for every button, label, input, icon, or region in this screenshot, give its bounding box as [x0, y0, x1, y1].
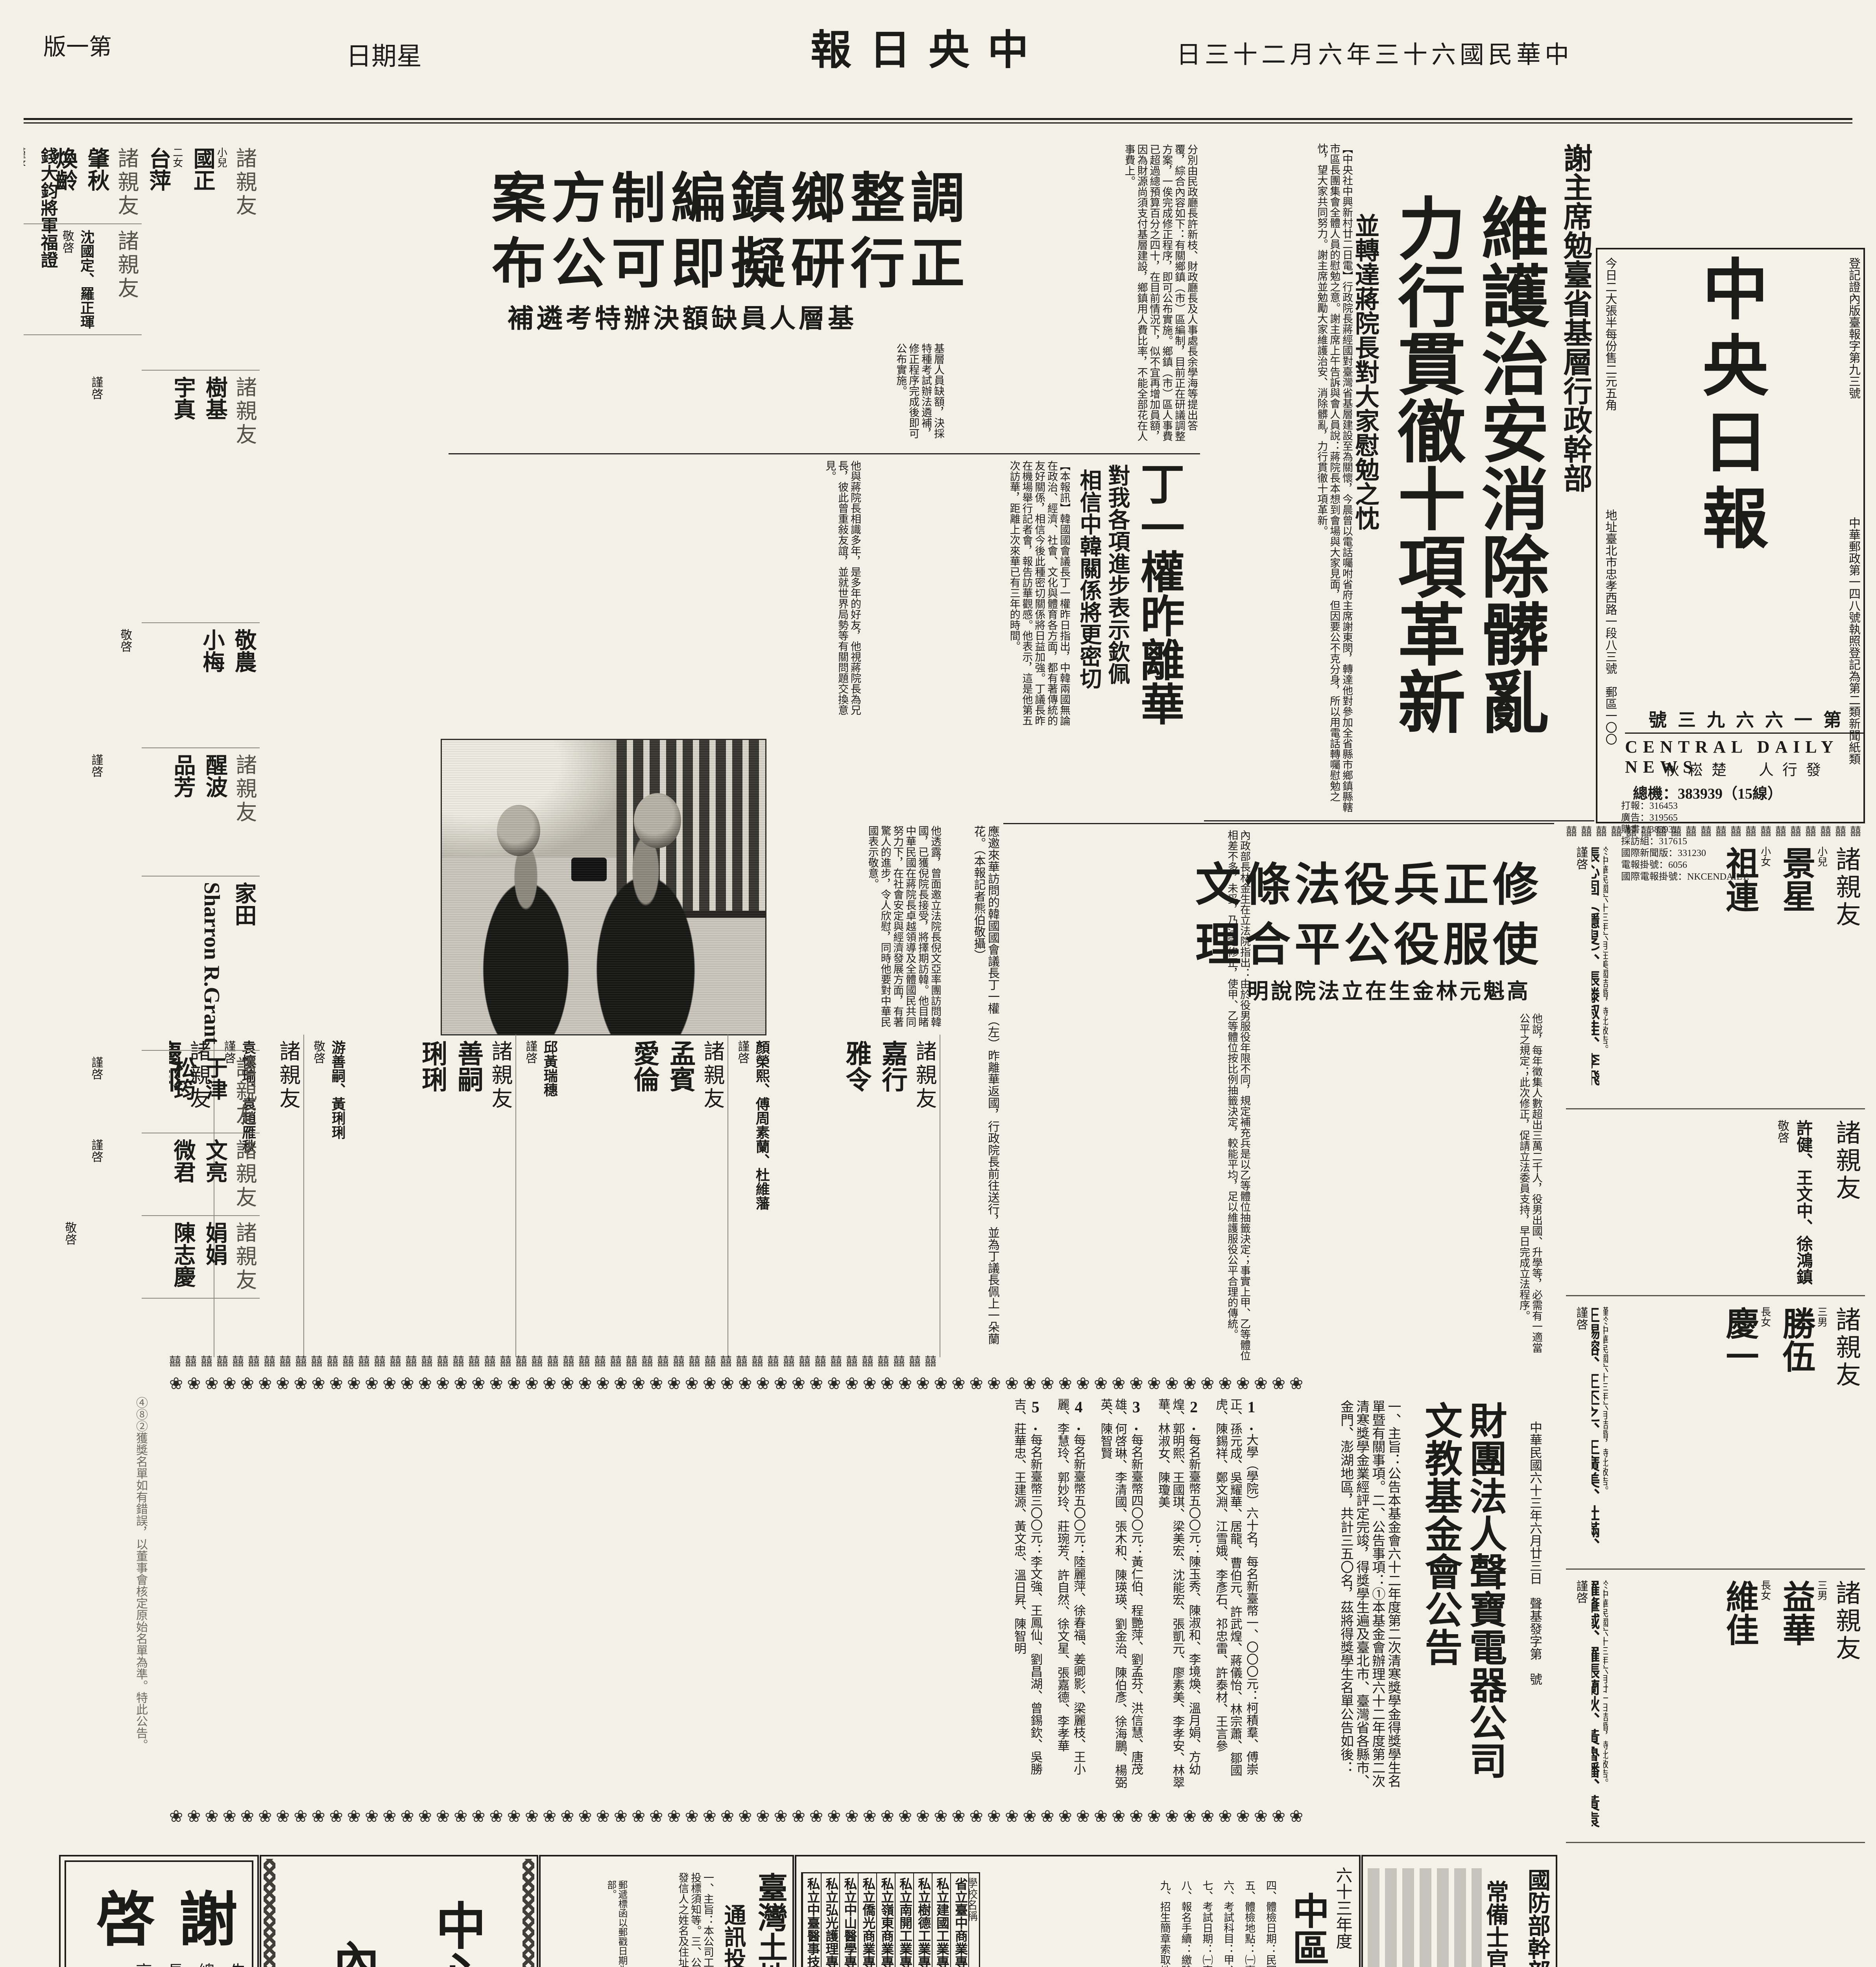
- ad-closer: 謹啓: [1574, 1580, 1588, 1603]
- classified-ad: 諸親友 許健、王文中、徐鴻鎮 敬啓: [1566, 1109, 1865, 1296]
- ad-header: 諸親友: [231, 376, 257, 447]
- ad-header: 諸親友: [231, 1139, 257, 1210]
- ad-couple-names: 于津 松筠: [111, 1056, 228, 1100]
- ad-couple-names: 樹基 宇真: [111, 376, 228, 420]
- schools-item: 七、考試日期：㈠專科學生班 ㈡常備士官班。: [1200, 1880, 1213, 1967]
- ad-closer: 謹啓: [89, 754, 103, 777]
- winner-group-number: 3.: [1127, 1398, 1145, 1434]
- winner-group: 1.大學（學院）六十名，每名新臺幣一、〇〇〇元：柯積羣、傅崇正、孫元成、吳耀華、…: [1213, 1398, 1261, 1795]
- masthead-publisher: 發行人 楚崧秋: [1664, 758, 1830, 779]
- school-name: 私立樹德工業專科學校: [913, 1873, 932, 1967]
- ad-couple-names: 娟娟 陳志慶: [84, 1222, 227, 1288]
- ad-name-1: 善嗣: [452, 1040, 483, 1092]
- shenbao-items: 一、主旨：公告本基金會六十二年度第二次清寒獎學金得獎學生名單暨有關事項。二、公告…: [1271, 1400, 1401, 1793]
- shenbao-title: 財團法人聲寶電器公司文教基金會公告: [1413, 1401, 1507, 1791]
- school-name: 私立弘光護理專科學校: [821, 1873, 839, 1967]
- ad-name-2: 微君: [169, 1139, 196, 1183]
- masthead-registration-1: 登記證內版臺報字第九三號: [1846, 257, 1860, 509]
- ad-relation-2: 小女: [1759, 846, 1771, 912]
- ad-header: 諸親友: [1831, 846, 1861, 929]
- ad-header: 諸親友: [1831, 1580, 1861, 1663]
- lead-headline-1: 維護治安消除髒亂: [1468, 194, 1548, 815]
- schools-table-header: 學校名稱: [968, 1873, 979, 1967]
- ad-name-2: 煥齡: [51, 147, 78, 191]
- ad-header: 諸親友: [231, 1056, 257, 1127]
- lead-body: 【中央社中興新村廿二日電】行政院長蔣經國對臺灣省基層建設至為關懷，今晨曾以電話囑…: [1207, 143, 1353, 815]
- ad-relation-2: 二女: [171, 147, 183, 191]
- ad-header: 諸親友: [113, 147, 138, 218]
- ad-relation-1: 三男: [1815, 1306, 1828, 1373]
- tender-title: 臺灣土地開發信託投資公司: [752, 1872, 787, 1967]
- thanks-line: 先嚴王公舍抄之喪辱蒙: [226, 1963, 246, 1967]
- ad-name-2: 品芳: [169, 754, 196, 798]
- masthead-phone-line: 廣告：319565: [1621, 812, 1749, 824]
- shenbao-footnote: ④⑧②獲獎名單如有錯誤，以董事會核定原始名單為準。特此公告。: [30, 1397, 148, 1806]
- masthead-issue-no: 第一六六九三號: [1649, 706, 1852, 732]
- ad-closer: 謹啓: [89, 1056, 103, 1080]
- ad-closer: 謹啓: [1574, 1306, 1588, 1330]
- weekday-label: 星期日: [346, 36, 422, 72]
- classified-ad: 敬農 小梅 朱少先、朱唐佩玢 敬啓: [142, 623, 260, 748]
- schools-items: 四、體檢日期：民國六十三年六月廿六日。五、體檢地點：㈠臺北區 ㈡臺中區 ㈢高雄區…: [985, 1880, 1276, 1967]
- thanks-line: 長官親友寵賜隆儀親臨弔唁: [163, 1963, 183, 1967]
- photo-halftone-grain: [442, 740, 765, 1034]
- ad-name-2: 祖連: [1720, 846, 1759, 912]
- ad-name-2: 愛倫: [628, 1040, 659, 1092]
- header-rule: [24, 118, 1852, 124]
- military-body-b: 他說，每年徵集人數超出三萬二千人，役男出國、升學等，必需有一適當公平之規定；此次…: [1228, 1013, 1542, 1359]
- school-name: 私立僑光商業專科學校: [858, 1873, 876, 1967]
- shenbao-winner-groups: 1.大學（學院）六十名，每名新臺幣一、〇〇〇元：柯積羣、傅崇正、孫元成、吳耀華、…: [175, 1398, 1261, 1795]
- thanks-title: 謝啓: [96, 1872, 261, 1958]
- ad-name-1: 文亮: [201, 1139, 227, 1183]
- ad-relation-2: 長女: [1759, 1580, 1771, 1646]
- ad-closer: 敬啓: [60, 230, 74, 253]
- clinic-title-2: 內科住院醫師: [324, 1939, 379, 1967]
- ad-closer: 謹啓: [523, 1040, 537, 1064]
- ad-couple-names: 家田 Sharron R.Grant: [140, 882, 257, 1044]
- ad-couple-names: 醒波 品芳: [111, 754, 228, 798]
- winner-group-number: 4.: [1070, 1398, 1088, 1434]
- winner-group: 2.每名新臺幣五〇〇元：陳玉秀、陳淑和、李境煥、溫月娟、方幼煌、郭明熙、王國琪、…: [1156, 1398, 1203, 1795]
- township-body: 分別由民政廳長許新枝、財政廳長及人事處長余學海等提出答覆，綜合內容如下：有關鄉鎮…: [954, 144, 1198, 447]
- ad-body-text: 於中華民國六十三年六月廿一日結婚，特此敬告。: [1603, 1580, 1608, 1788]
- classified-ad: 諸親友 樹基 宇真 蕭王春庭、蕭劍青、謝炳元、謝應安蓮 謹啓: [142, 371, 260, 623]
- masthead-title: 中央日報: [1690, 255, 1768, 703]
- winner-group-quota: 每名新臺幣三〇〇元：: [1028, 1434, 1042, 1556]
- ad-couple-names: 肇秋 煥齡: [24, 147, 109, 191]
- ad-body-text: 謹於中華民國六十三年六月結婚，特此敬告。: [1603, 1306, 1608, 1495]
- ad-signers: 許健、王文中、徐鴻鎮: [1793, 1120, 1813, 1285]
- ad-header: 諸親友: [1831, 1306, 1861, 1389]
- ad-name-2: 慶一: [1720, 1306, 1759, 1373]
- township-headline-2: 正行研擬即可公布: [492, 220, 970, 298]
- clinic-title-1: 中心診所徵: [426, 1900, 486, 1967]
- ad-couple-names: 敬農 小梅: [140, 629, 257, 673]
- classified-ad: 家田 Sharron R.Grant: [142, 876, 260, 1051]
- winner-group-quota: 每名新臺幣五〇〇元：: [1072, 1434, 1086, 1556]
- school-name: 私立建國工業專科學校: [932, 1873, 950, 1967]
- flower-border-bottom: ❀❀❀❀❀❀❀❀❀❀❀❀❀❀❀❀❀❀❀❀❀❀❀❀❀❀❀❀❀❀❀❀❀❀❀❀❀❀❀❀…: [169, 1806, 1554, 1826]
- ad-relation-2: 長女: [1759, 1306, 1771, 1373]
- ad-closer: 謹啓: [1574, 846, 1588, 870]
- winner-group-number: 5.: [1027, 1398, 1044, 1434]
- ad-signers: 張心固（隱叟）、張滕淑佳、李飛鵬、李倪琪: [1592, 846, 1599, 1098]
- ad-name-1: 醒波: [201, 754, 227, 798]
- ad-header: 諸親友: [231, 754, 257, 825]
- ad-closer: 謹啓: [89, 1139, 103, 1162]
- right-classifieds-rail: 諸親友 小兒景星 小女祖連 於中華民國六十三年六月在美國結婚，特此敬告。 張心固…: [1566, 836, 1865, 1967]
- ad-name-1: 嘉行: [877, 1040, 907, 1092]
- schools-item: 六、考試科目：甲、專科學生班：國文、英文、中外史地、數學、理化（物理、化學）。乙…: [1221, 1880, 1234, 1967]
- masthead-price-line: 今日二大張半每份售二元五角: [1603, 257, 1617, 501]
- township-subhead: 基層人員缺額決辦特考遴補: [508, 297, 857, 335]
- ad-header: 諸親友: [699, 1040, 724, 1111]
- classified-ad: 諸親友 三男勝伍 長女慶一 謹於中華民國六十三年六月結婚，特此敬告。 王錫鎔、王…: [1566, 1296, 1865, 1570]
- tender-subtitle: 通訊投標公告: [720, 1904, 746, 1967]
- ad-closer: 謹啓: [89, 376, 103, 400]
- clinic-border-left: [264, 1859, 275, 1967]
- ad-name-1: 娟娟: [201, 1222, 227, 1288]
- classified-ad: 諸親友 于津 松筠 謹啓: [142, 1051, 260, 1133]
- lead-subhead: 並轉達蔣院長對大家慰勉之忱: [1350, 213, 1379, 795]
- ting-body-2: 他與蔣院長相識多年，是多年的好友，他視蔣院長為兄長，彼此曾重敍友誼，並就世界局勢…: [550, 460, 861, 733]
- ad-closer: 敬啓: [1775, 1120, 1789, 1143]
- classified-ad: 諸親友 小兒景星 小女祖連 於中華民國六十三年六月在美國結婚，特此敬告。 張心固…: [1566, 836, 1865, 1109]
- masthead-address-line: 地址臺北市忠孝西路一段八三號 郵區一〇〇: [1603, 509, 1617, 808]
- ad-name-1: 景星: [1776, 846, 1815, 912]
- ad-name-1: 于津: [201, 1056, 227, 1100]
- ad-header: 諸親友: [231, 147, 257, 218]
- ting-body-3: 他透露，曾面邀立法院長倪文亞率團訪問韓國，已獲倪院長接受，將擇期訪韓。他目睹中華…: [768, 825, 941, 1028]
- classified-ad: 諸親友 三男益華 長女維佳 於中華民國六十三年六月廿一日結婚，特此敬告。 羅肇域…: [1566, 1570, 1865, 1843]
- ad-name-1: 勝伍: [1776, 1306, 1815, 1373]
- tender-items: 一、主旨：本公司工程定期招標公告。二、依據：政府有關法令及本公司投標須知等。三、…: [639, 1872, 714, 1967]
- ad-couple-names: 嘉行 雅令: [774, 1040, 908, 1092]
- schools-item: 四、體檢日期：民國六十三年六月廿六日。: [1264, 1880, 1276, 1967]
- winner-group-quota: 大學（學院）六十名，每名新臺幣一、〇〇〇元：: [1245, 1434, 1258, 1702]
- ad-header: 諸親友: [1831, 1120, 1861, 1202]
- ad-couple-names: 小兒景星 小女祖連: [1612, 846, 1827, 912]
- ad-name-2: Sharron R.Grant: [198, 882, 225, 1044]
- ad-name-1: 孟賓: [665, 1040, 695, 1092]
- ad-signers: 沈國定、羅正琿: [78, 230, 94, 329]
- school-name: 私立嶺東商業專科學校: [876, 1873, 895, 1967]
- article-military: 修正兵役法條文 使服役公平合理 高魁元林金生在立法院說明 內政部長林金生在立法院…: [1003, 823, 1554, 1371]
- thanks-line: 總統 副總統頒賜輓額: [195, 1963, 214, 1967]
- ting-headline: 丁一權昨離華: [1132, 461, 1184, 733]
- thanks-lines: 先嚴王公舍抄之喪辱蒙總統 副總統頒賜輓額長官親友寵賜隆儀親臨弔唁高誼雲情歿榮存感: [76, 1963, 246, 1967]
- winner-group: 5.每名新臺幣三〇〇元：李文強、王鳳仙、劉昌湖、曾錫欽、吳勝吉、莊華忠、王建源、…: [1012, 1398, 1045, 1795]
- tender-ad: 臺灣土地開發信託投資公司 通訊投標公告 中華民國63年6月 日 一、主旨：本公司…: [539, 1855, 794, 1967]
- ad-name-1: 國正: [189, 147, 215, 191]
- ad-name-2: 陳志慶: [169, 1222, 196, 1288]
- ad-name-2: 維佳: [1720, 1580, 1759, 1646]
- ad-name-2: 宇真: [169, 376, 196, 420]
- ting-subhead-2: 相信中韓關係將更密切: [1076, 469, 1102, 729]
- schools-item: 九、招生簡章索取地點：向各區辦事處索取。: [1158, 1880, 1171, 1967]
- classified-ad: 諸親友 小兒國正 二女台萍 錢大鈞將軍福證 於中華民國六十三年六月在臺北市結婚，…: [142, 142, 260, 371]
- ad-relation-1: 三男: [1815, 1580, 1828, 1646]
- schools-year: 六十三年度: [1332, 1867, 1352, 1967]
- ad-name-1: 益華: [1776, 1580, 1815, 1646]
- edition-label: 第一版: [43, 28, 112, 61]
- ad-couple-names: 三男益華 長女維佳: [1612, 1580, 1827, 1646]
- winner-group-number: 1.: [1243, 1398, 1260, 1434]
- schools-table-list: 省立臺中商業專科學校私立建國工業專科學校私立樹德工業專科學校私立南開工業專科學校…: [802, 1873, 968, 1967]
- left-classifieds-rail: 諸親友 小兒國正 二女台萍 錢大鈞將軍福證 於中華民國六十三年六月在臺北市結婚，…: [24, 142, 447, 1369]
- ad-header: 諸親友: [113, 230, 138, 301]
- defense-body-text-illegible: [1368, 1868, 1482, 1967]
- paper-name-center: 中央日報: [811, 17, 1047, 76]
- winner-group: 3.每名新臺幣四〇〇元：黃仁伯、程艷萍、劉孟芬、洪信慧、唐茂雄、何啓琳、李清國、…: [1098, 1398, 1145, 1795]
- township-body-2: 基層人員缺額，決採特種考試辦法遴補，修正程序完成後即可公布實施。: [492, 343, 944, 446]
- ad-header: 諸親友: [487, 1040, 512, 1111]
- military-subhead: 高魁元林金生在立法院說明: [1247, 974, 1531, 1005]
- classified-ad: 諸親友 嘉行 雅令 顏榮熙、傅周素蘭、杜維藩 謹啓: [728, 1035, 940, 1357]
- ad-relation-1: 小兒: [215, 147, 227, 191]
- winner-group-number: 2.: [1185, 1398, 1203, 1434]
- classified-ad: 諸親友 文亮 微君 蔡新竹 謹啓: [142, 1133, 260, 1216]
- classified-ad: 諸親友 肇秋 煥齡 謹啓: [24, 142, 142, 224]
- newspaper-page: { "page": { "edition": "第一版", "weekday":…: [0, 0, 1876, 1967]
- masthead-box: 登記證內版臺報字第九三號 中華郵政第一四八號執照登記為第二類新聞紙類 中央日報 …: [1596, 248, 1865, 823]
- ad-name-2: 小梅: [198, 629, 225, 673]
- winner-group-quota: 每名新臺幣五〇〇元：: [1187, 1434, 1201, 1556]
- ad-signers: 王錫鎔、王丕之、王廣美、杜滿、卓然: [1592, 1306, 1599, 1558]
- winner-group-quota: 每名新臺幣四〇〇元：: [1129, 1434, 1143, 1556]
- schools-ad: 六十三年度 中區五年制專科學校招生公告 四、體檢日期：民國六十三年六月廿六日。五…: [795, 1855, 1361, 1967]
- school-name: 私立中山醫學專科學校: [839, 1873, 858, 1967]
- article-lead: 謝主席勉臺省基層行政幹部 維護治安消除髒亂 力行貫徹十項革新 並轉達蔣院長對大家…: [1204, 138, 1594, 821]
- classified-ad: 諸親友 醒波 品芳 張□波、吳陳□鶯 謹啓: [142, 748, 260, 876]
- classified-ad: 諸親友 娟娟 陳志慶 黃國楨 敬啓: [142, 1216, 260, 1299]
- tender-note: 郵遞標函以郵戳日期為憑，逾期則無效。臺北市寧波街53號7樓本公司工務部。: [592, 1880, 627, 1967]
- ad-couple-names: 文亮 微君: [111, 1139, 228, 1183]
- flower-border-top: ❀❀❀❀❀❀❀❀❀❀❀❀❀❀❀❀❀❀❀❀❀❀❀❀❀❀❀❀❀❀❀❀❀❀❀❀❀❀❀❀…: [169, 1374, 1554, 1393]
- clinic-ad: 中心診所徵 內科住院醫師 醫學系畢業領有醫師證書者 意者請函臺北市廣州街14巷1…: [260, 1855, 538, 1967]
- shenbao-date-line: 中華民國六十三年六月廿三日 聲基發字第 號: [1527, 1421, 1542, 1799]
- news-photo: [441, 739, 766, 1035]
- ad-couple-names: 孟賓 愛倫: [562, 1040, 696, 1092]
- defense-ad: 國防部幹部訓練班專科學生班 及 常備士官班（64）年度聯合招生公告: [1361, 1855, 1557, 1967]
- ting-subhead-1: 對我各項進步表示欽佩: [1104, 464, 1130, 724]
- classified-ad: 諸親友 沈國定、羅正琿 敬啓: [24, 224, 142, 335]
- military-body-a: 內政部長林金生在立法院指出：由於役男服役年限不同，規定補充兵是以乙等體位抽籤決定…: [1006, 830, 1250, 1364]
- ad-relation-1: 小兒: [1815, 846, 1828, 912]
- ad-signers: 顏榮熙、傅周素蘭、杜維藩: [753, 1040, 770, 1210]
- ad-header: 諸親友: [231, 1222, 257, 1292]
- ad-closer: 敬啓: [63, 1222, 76, 1245]
- lead-kicker: 謝主席勉臺省基層行政幹部: [1558, 143, 1592, 812]
- ad-name-1: 家田: [230, 882, 257, 1044]
- ad-couple-names: 三男勝伍 長女慶一: [1612, 1306, 1827, 1373]
- defense-title-2: 常備士官班（64）年度聯合招生公告: [1482, 1880, 1509, 1967]
- lead-headline-2: 力行貫徹十項革新: [1385, 194, 1464, 815]
- ad-signers: 羅肇域、羅張蘭秋、黃魯璠、黃袁谷秀: [1592, 1580, 1599, 1832]
- ad-signers: 邱黃瑞穗: [541, 1040, 558, 1097]
- masthead-phone-line: 打報：316453: [1621, 800, 1749, 812]
- masthead-switchboard: 總機：383939（15線）: [1633, 781, 1782, 803]
- date-line: 中華民國六十三年六月二十三日: [1176, 35, 1573, 70]
- ad-name-1: 樹基: [201, 376, 227, 420]
- thanks-line: 高誼雲情歿榮存感: [132, 1963, 152, 1967]
- clinic-border-right: [523, 1859, 534, 1967]
- ad-closer: 敬啓: [118, 629, 132, 652]
- schools-item: 八、報名手續：繳驗身分證及學歷證件。: [1179, 1880, 1192, 1967]
- ad-closer: 謹啓: [735, 1040, 749, 1064]
- photo-caption: 應邀來華訪問的韓國國會議長丁一權（左）昨離華返國，行政院長前往送行，並為丁議長佩…: [947, 825, 999, 1349]
- article-ting: 丁一權昨離華 對我各項進步表示欽佩 相信中韓關係將更密切 【本報訊】韓國國會議長…: [547, 456, 1200, 737]
- ad-name-2: 松筠: [169, 1056, 196, 1100]
- shenbao-announcement: ❀❀❀❀❀❀❀❀❀❀❀❀❀❀❀❀❀❀❀❀❀❀❀❀❀❀❀❀❀❀❀❀❀❀❀❀❀❀❀❀…: [169, 1374, 1554, 1826]
- ad-name-1: 敬農: [230, 629, 257, 673]
- classified-ad: 諸親友 孟賓 愛倫 邱黃瑞穗 謹啓: [516, 1035, 728, 1357]
- school-name: 私立南開工業專科學校: [895, 1873, 913, 1967]
- ting-body: 【本報訊】韓國國會議長丁一權昨日指出，中韓兩國無論在政治、經濟、社會、文化與體育…: [873, 460, 1070, 733]
- school-name: 省立臺中商業專科學校: [950, 1873, 969, 1967]
- schools-item: 五、體檢地點：㈠臺北區 ㈡臺中區 ㈢高雄區 ㈣花蓮區 ㈤金門區。: [1243, 1880, 1255, 1967]
- ad-header: 諸親友: [911, 1040, 936, 1111]
- thanks-notice: 謝啓 先嚴王公舍抄之喪辱蒙總統 副總統頒賜輓額長官親友寵賜隆儀親臨弔唁高誼雲情歿…: [59, 1855, 259, 1967]
- ad-body-text: 於中華民國六十三年六月在美國結婚，特此敬告。: [1603, 846, 1608, 1054]
- article-township: 調整鄉鎮編制方案 正行研擬即可公布 基層人員缺額決辦特考遴補 分別由民政廳長許新…: [449, 138, 1200, 454]
- schools-table: 學校名稱 省立臺中商業專科學校私立建國工業專科學校私立樹德工業專科學校私立南開工…: [801, 1872, 980, 1967]
- ad-name-2: 台萍: [145, 147, 171, 191]
- ad-name-1: 肇秋: [83, 147, 109, 191]
- school-name: 私立中臺醫事技術專科學校: [802, 1873, 821, 1967]
- defense-title-1: 國防部幹部訓練班專科學生班: [1523, 1868, 1550, 1967]
- winner-group: 4.每名新臺幣五〇〇元：陸麗萍、徐春福、姜卿影、梁麗枝、王小麗、李慧玲、郭妙玲、…: [1055, 1398, 1088, 1795]
- ad-name-2: 雅令: [841, 1040, 872, 1092]
- schools-title: 中區五年制專科學校招生公告: [1285, 1892, 1329, 1967]
